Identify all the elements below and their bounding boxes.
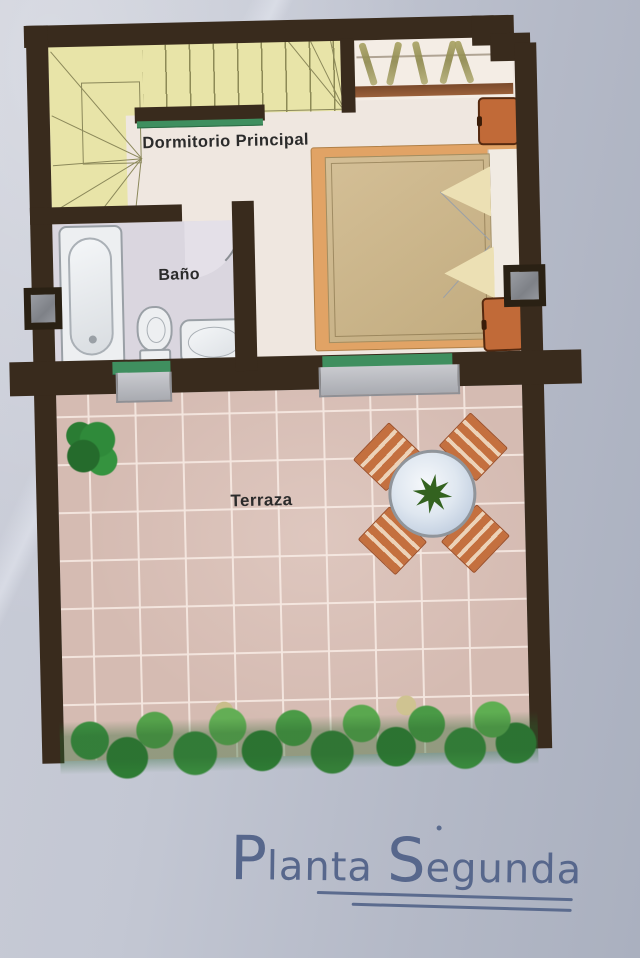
terrace-door-step-left <box>116 372 173 403</box>
column-right <box>503 264 546 307</box>
sink-basin <box>188 326 241 358</box>
hedge-plants <box>59 686 539 785</box>
table-centerpiece-plant-icon <box>410 471 456 517</box>
bathtub <box>58 225 125 372</box>
floor-plan: Dormitorio Principal Baño <box>0 0 640 836</box>
nightstand-knob <box>481 320 486 330</box>
column-left <box>24 287 63 330</box>
photographed-floor-plan-page: Dormitorio Principal Baño <box>0 0 640 958</box>
potted-bush <box>55 403 137 497</box>
terrace-door-step-right <box>318 364 460 397</box>
toilet-bowl <box>146 317 166 343</box>
toilet <box>136 306 173 353</box>
bedroom-label: Dormitorio Principal <box>142 131 309 154</box>
wall-bathroom-top <box>30 204 182 224</box>
terrace-label: Terraza <box>230 490 292 511</box>
caption-block: PlantaSegunda <box>0 0 640 124</box>
wall-bathroom-right <box>232 201 258 371</box>
bathroom-label: Baño <box>158 266 200 285</box>
